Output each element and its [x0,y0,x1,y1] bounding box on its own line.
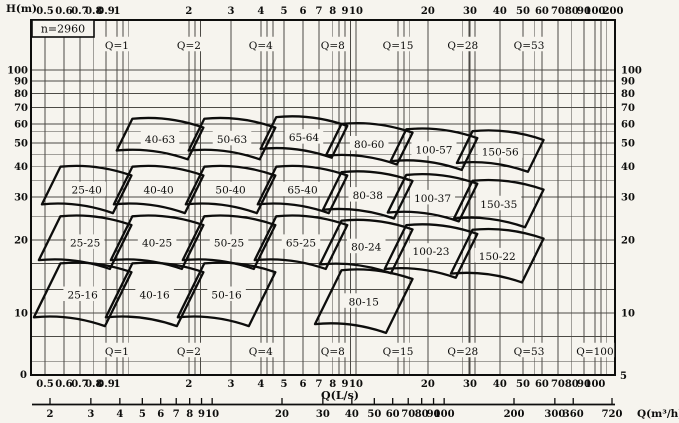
region-label-65-40: 65-40 [287,185,317,197]
right-tick-60: 60 [621,119,635,130]
y-axis-title: H(m) [6,3,37,15]
speed-label: n=2960 [41,23,85,36]
region-label-80-15: 80-15 [349,296,379,308]
flow-label-top-28: Q=28 [447,40,478,52]
bottom-tick-0.5: 0.5 [36,379,53,390]
right-tick-50: 50 [621,139,635,150]
flow-label-bottom-4: Q=4 [249,346,273,358]
secondary-axis-title: Q(m³/h) [637,408,679,420]
top-tick-20: 20 [421,6,435,17]
region-label-150-22: 150-22 [479,251,516,263]
top-tick-200: 200 [603,6,624,17]
left-tick-70: 70 [14,103,28,114]
secondary-tick-label-50: 50 [367,409,381,420]
region-label-25-40: 25-40 [72,185,102,197]
right-tick-40: 40 [621,162,635,173]
flow-label-top-8: Q=8 [321,40,345,52]
top-tick-40: 40 [493,6,507,17]
bottom-tick-50: 50 [516,379,530,390]
top-tick-0.5: 0.5 [36,6,53,17]
secondary-tick-label-720: 720 [602,409,623,420]
pump-chart-canvas: 40-6350-6365-6480-60100-57150-5625-4040-… [0,0,679,423]
secondary-tick-label-8: 8 [186,409,193,420]
left-origin-label: 0 [20,370,27,381]
right-tick-20: 20 [621,235,635,246]
bottom-tick-3: 3 [227,379,234,390]
bottom-tick-2: 2 [185,379,192,390]
left-tick-90: 90 [14,77,28,88]
bottom-tick-1: 1 [113,379,120,390]
bottom-tick-100: 100 [585,379,606,390]
top-tick-50: 50 [516,6,530,17]
flow-label-bottom-15: Q=15 [383,346,414,358]
secondary-tick-label-3: 3 [87,409,94,420]
right-tick-10: 10 [621,309,635,320]
bottom-tick-0.9: 0.9 [97,379,114,390]
top-tick-70: 70 [551,6,565,17]
bottom-tick-20: 20 [421,379,435,390]
region-label-50-25: 50-25 [214,237,244,249]
region-label-100-37: 100-37 [414,193,451,205]
left-tick-20: 20 [14,235,28,246]
top-tick-0.6: 0.6 [55,6,72,17]
top-tick-3: 3 [227,6,234,17]
top-tick-0.9: 0.9 [97,6,114,17]
bottom-tick-60: 60 [535,379,549,390]
top-tick-8: 8 [329,6,336,17]
region-label-80-60: 80-60 [354,139,384,151]
top-tick-1: 1 [113,6,120,17]
left-tick-100: 100 [7,66,28,77]
secondary-tick-label-200: 200 [504,409,525,420]
left-tick-50: 50 [14,139,28,150]
bottom-tick-0.6: 0.6 [55,379,72,390]
flow-label-bottom-8: Q=8 [321,346,345,358]
right-tick-90: 90 [621,77,635,88]
bottom-tick-30: 30 [463,379,477,390]
speed-box: n=2960 [32,20,94,37]
right-tick-80: 80 [621,89,635,100]
secondary-tick-label-5: 5 [139,409,146,420]
left-tick-30: 30 [14,193,28,204]
secondary-tick-label-100: 100 [434,409,455,420]
bottom-tick-5: 5 [281,379,288,390]
region-label-50-40: 50-40 [215,185,245,197]
secondary-tick-label-60: 60 [386,409,400,420]
left-tick-40: 40 [14,162,28,173]
top-tick-5: 5 [281,6,288,17]
region-label-65-64: 65-64 [289,132,320,144]
top-tick-4: 4 [257,6,264,17]
flow-label-bottom-2: Q=2 [177,346,201,358]
secondary-tick-label-70: 70 [401,409,415,420]
flow-label-top-53: Q=53 [514,40,545,52]
region-label-80-24: 80-24 [351,242,382,254]
secondary-tick-label-30: 30 [316,409,330,420]
flow-label-top-1: Q=1 [105,40,129,52]
bottom-tick-4: 4 [257,379,264,390]
bottom-tick-40: 40 [493,379,507,390]
top-tick-30: 30 [463,6,477,17]
top-tick-60: 60 [535,6,549,17]
region-label-80-38: 80-38 [353,190,383,202]
secondary-tick-label-6: 6 [157,409,164,420]
bottom-tick-70: 70 [551,379,565,390]
flow-label-bottom-1: Q=1 [105,346,129,358]
top-tick-6: 6 [299,6,306,17]
x-axis-title: Q(L/s) [321,389,359,402]
flow-label-top-15: Q=15 [383,40,414,52]
region-label-100-23: 100-23 [413,246,450,258]
region-label-25-16: 25-16 [68,290,99,302]
top-tick-10: 10 [349,6,363,17]
region-label-40-40: 40-40 [143,185,173,197]
region-label-25-25: 25-25 [70,237,100,249]
region-label-150-56: 150-56 [482,146,519,158]
bottom-tick-6: 6 [299,379,306,390]
secondary-tick-label-40: 40 [345,409,359,420]
region-label-50-63: 50-63 [217,134,247,146]
region-label-100-57: 100-57 [416,144,453,156]
region-label-40-25: 40-25 [142,237,172,249]
region-label-50-16: 50-16 [211,290,242,302]
flow-label-bottom-28: Q=28 [447,346,478,358]
secondary-tick-label-9: 9 [198,409,205,420]
right-tick-100: 100 [621,66,642,77]
left-tick-80: 80 [14,89,28,100]
right-tick-70: 70 [621,103,635,114]
flow-label-bottom-100: Q=100 [576,346,613,358]
pump-type-spectrum-chart: 40-6350-6365-6480-60100-57150-5625-4040-… [0,0,679,423]
secondary-tick-label-2: 2 [47,409,54,420]
secondary-tick-label-4: 4 [116,409,123,420]
region-label-65-25: 65-25 [286,237,316,249]
right-bottom-label: 5 [620,371,627,382]
region-label-40-16: 40-16 [139,290,170,302]
right-tick-30: 30 [621,193,635,204]
top-tick-7: 7 [315,6,322,17]
top-tick-9: 9 [342,6,349,17]
region-label-40-63: 40-63 [145,134,175,146]
left-tick-60: 60 [14,119,28,130]
secondary-tick-label-7: 7 [173,409,180,420]
top-tick-2: 2 [185,6,192,17]
flow-label-top-2: Q=2 [177,40,201,52]
secondary-tick-label-360: 360 [563,409,584,420]
flow-label-bottom-53: Q=53 [514,346,545,358]
region-label-150-35: 150-35 [480,199,517,211]
left-tick-10: 10 [14,309,28,320]
flow-label-top-4: Q=4 [249,40,273,52]
secondary-tick-label-10: 10 [205,409,219,420]
secondary-tick-label-20: 20 [275,409,289,420]
